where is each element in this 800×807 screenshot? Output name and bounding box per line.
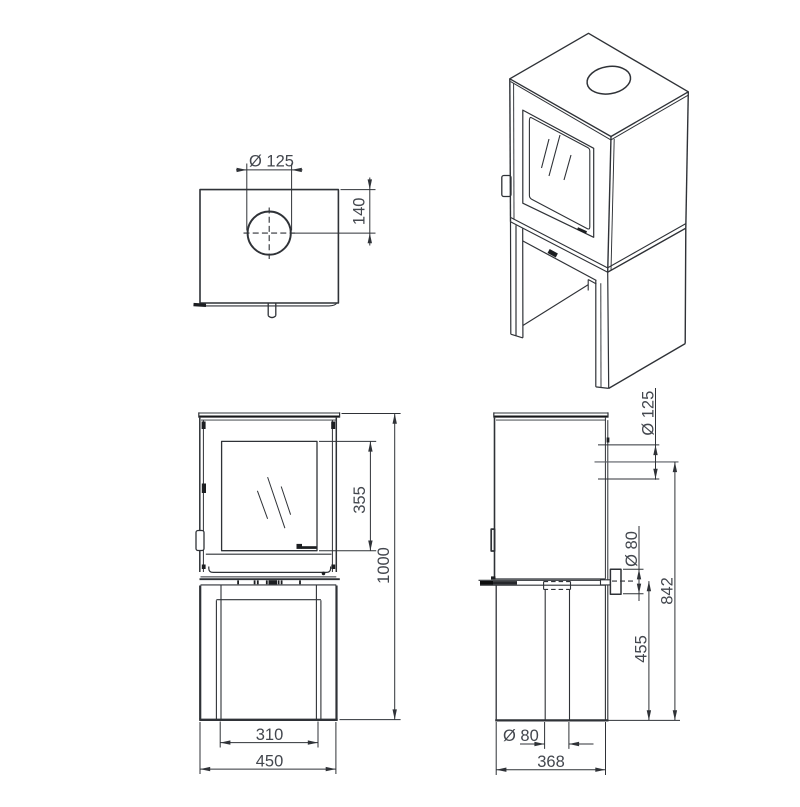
svg-text:368: 368 <box>537 753 565 771</box>
svg-text:140: 140 <box>351 198 369 226</box>
svg-text:1000: 1000 <box>375 547 393 584</box>
svg-text:355: 355 <box>351 486 369 514</box>
svg-text:310: 310 <box>256 726 284 744</box>
svg-text:Ø 125: Ø 125 <box>640 391 658 436</box>
svg-text:Ø 80: Ø 80 <box>623 531 641 567</box>
svg-text:842: 842 <box>658 577 676 605</box>
svg-text:450: 450 <box>256 753 284 771</box>
svg-text:Ø 125: Ø 125 <box>249 153 294 171</box>
svg-text:Ø 80: Ø 80 <box>503 727 539 745</box>
svg-text:455: 455 <box>633 635 651 663</box>
